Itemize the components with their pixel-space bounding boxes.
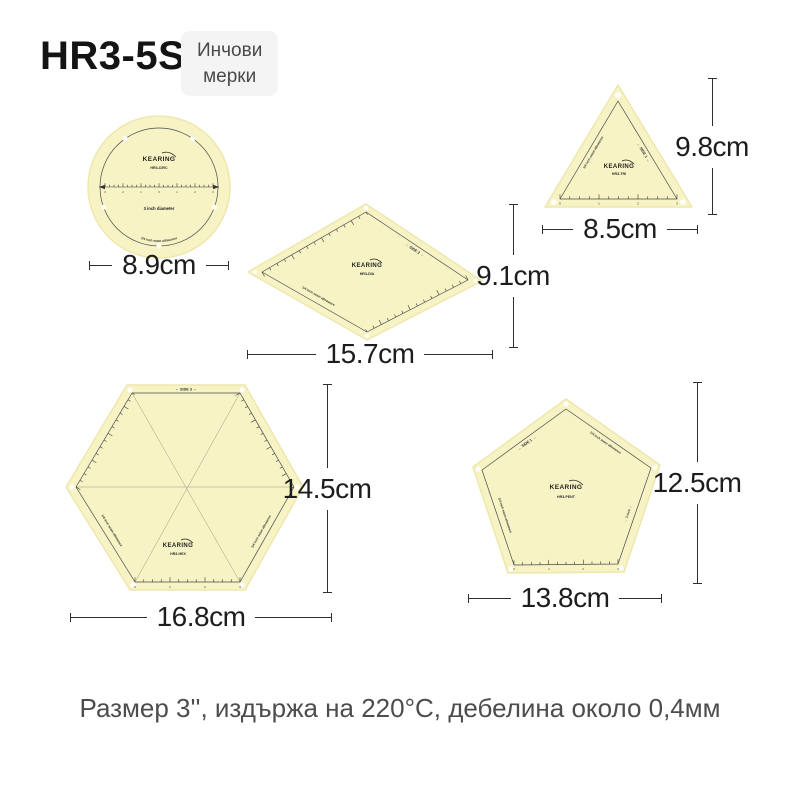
hexagon-side-label: ← SIDE 3 → [175,388,197,392]
unit-badge-line1: Инчови [197,38,262,64]
pentagon-height-value: 12.5cm [653,462,742,504]
diamond-height-dimension: 9.1cm [468,204,558,348]
triangle-height-value: 9.8cm [675,126,749,168]
caption: Размер 3'', издържа на 220°C, дебелина о… [0,693,800,724]
unit-badge-line2: мерки [197,64,262,90]
triangle-width-value: 8.5cm [573,215,667,243]
circle-diameter-label: 3 inch diameter [144,206,175,211]
hexagon-width-value: 16.8cm [147,603,256,631]
brand-text: KEARING [352,263,382,269]
unit-badge: Инчови мерки [181,31,278,96]
pentagon-height-dimension: 12.5cm [647,382,747,584]
pentagon-width-dimension: 13.8cm [468,584,662,612]
brand-text: KEARING [604,164,634,170]
circle-width-value: 8.9cm [112,251,206,279]
hexagon-template: 0 1 2 3 ← SIDE 3 → 1/4 inch seam allowan… [55,375,315,597]
hexagon-width-dimension: 16.8cm [70,603,332,631]
hexagon-code: HR3-HEX [170,552,186,556]
product-model: HR3-5S [40,34,185,79]
brand-text: KEARING [143,156,176,163]
pentagon-code: HR3-PENT [557,495,576,499]
hexagon-height-value: 14.5cm [283,468,372,510]
diamond-width-dimension: 15.7cm [247,340,493,368]
circle-code: HR3-CIRC [150,166,168,170]
diamond-height-value: 9.1cm [476,255,550,297]
triangle-width-dimension: 8.5cm [542,215,698,243]
product-image: HR3-5S Инчови мерки KEARING HR3-CIRC 3 2… [0,0,800,800]
pentagon-template: 0 1 2 3 ← SIDE 1 → 1/4 inch seam allowan… [455,385,670,585]
circle-template: KEARING HR3-CIRC 3 2 1 0 1 2 3 3 inch di… [85,115,233,263]
triangle-code: HR3-TRI [612,172,626,176]
hexagon-height-dimension: 14.5cm [277,384,377,593]
brand-text: KEARING [163,543,193,549]
pentagon-width-value: 13.8cm [511,584,620,612]
triangle-height-dimension: 9.8cm [667,78,757,215]
diamond-width-value: 15.7cm [316,340,425,368]
diamond-template: KEARING HR3-DIA ← SIDE 2 → 1/4 inch seam… [240,195,495,347]
brand-text: KEARING [550,484,583,491]
hexagon-shape [66,385,303,590]
circle-width-dimension: 8.9cm [89,251,229,279]
diamond-code: HR3-DIA [360,272,375,276]
